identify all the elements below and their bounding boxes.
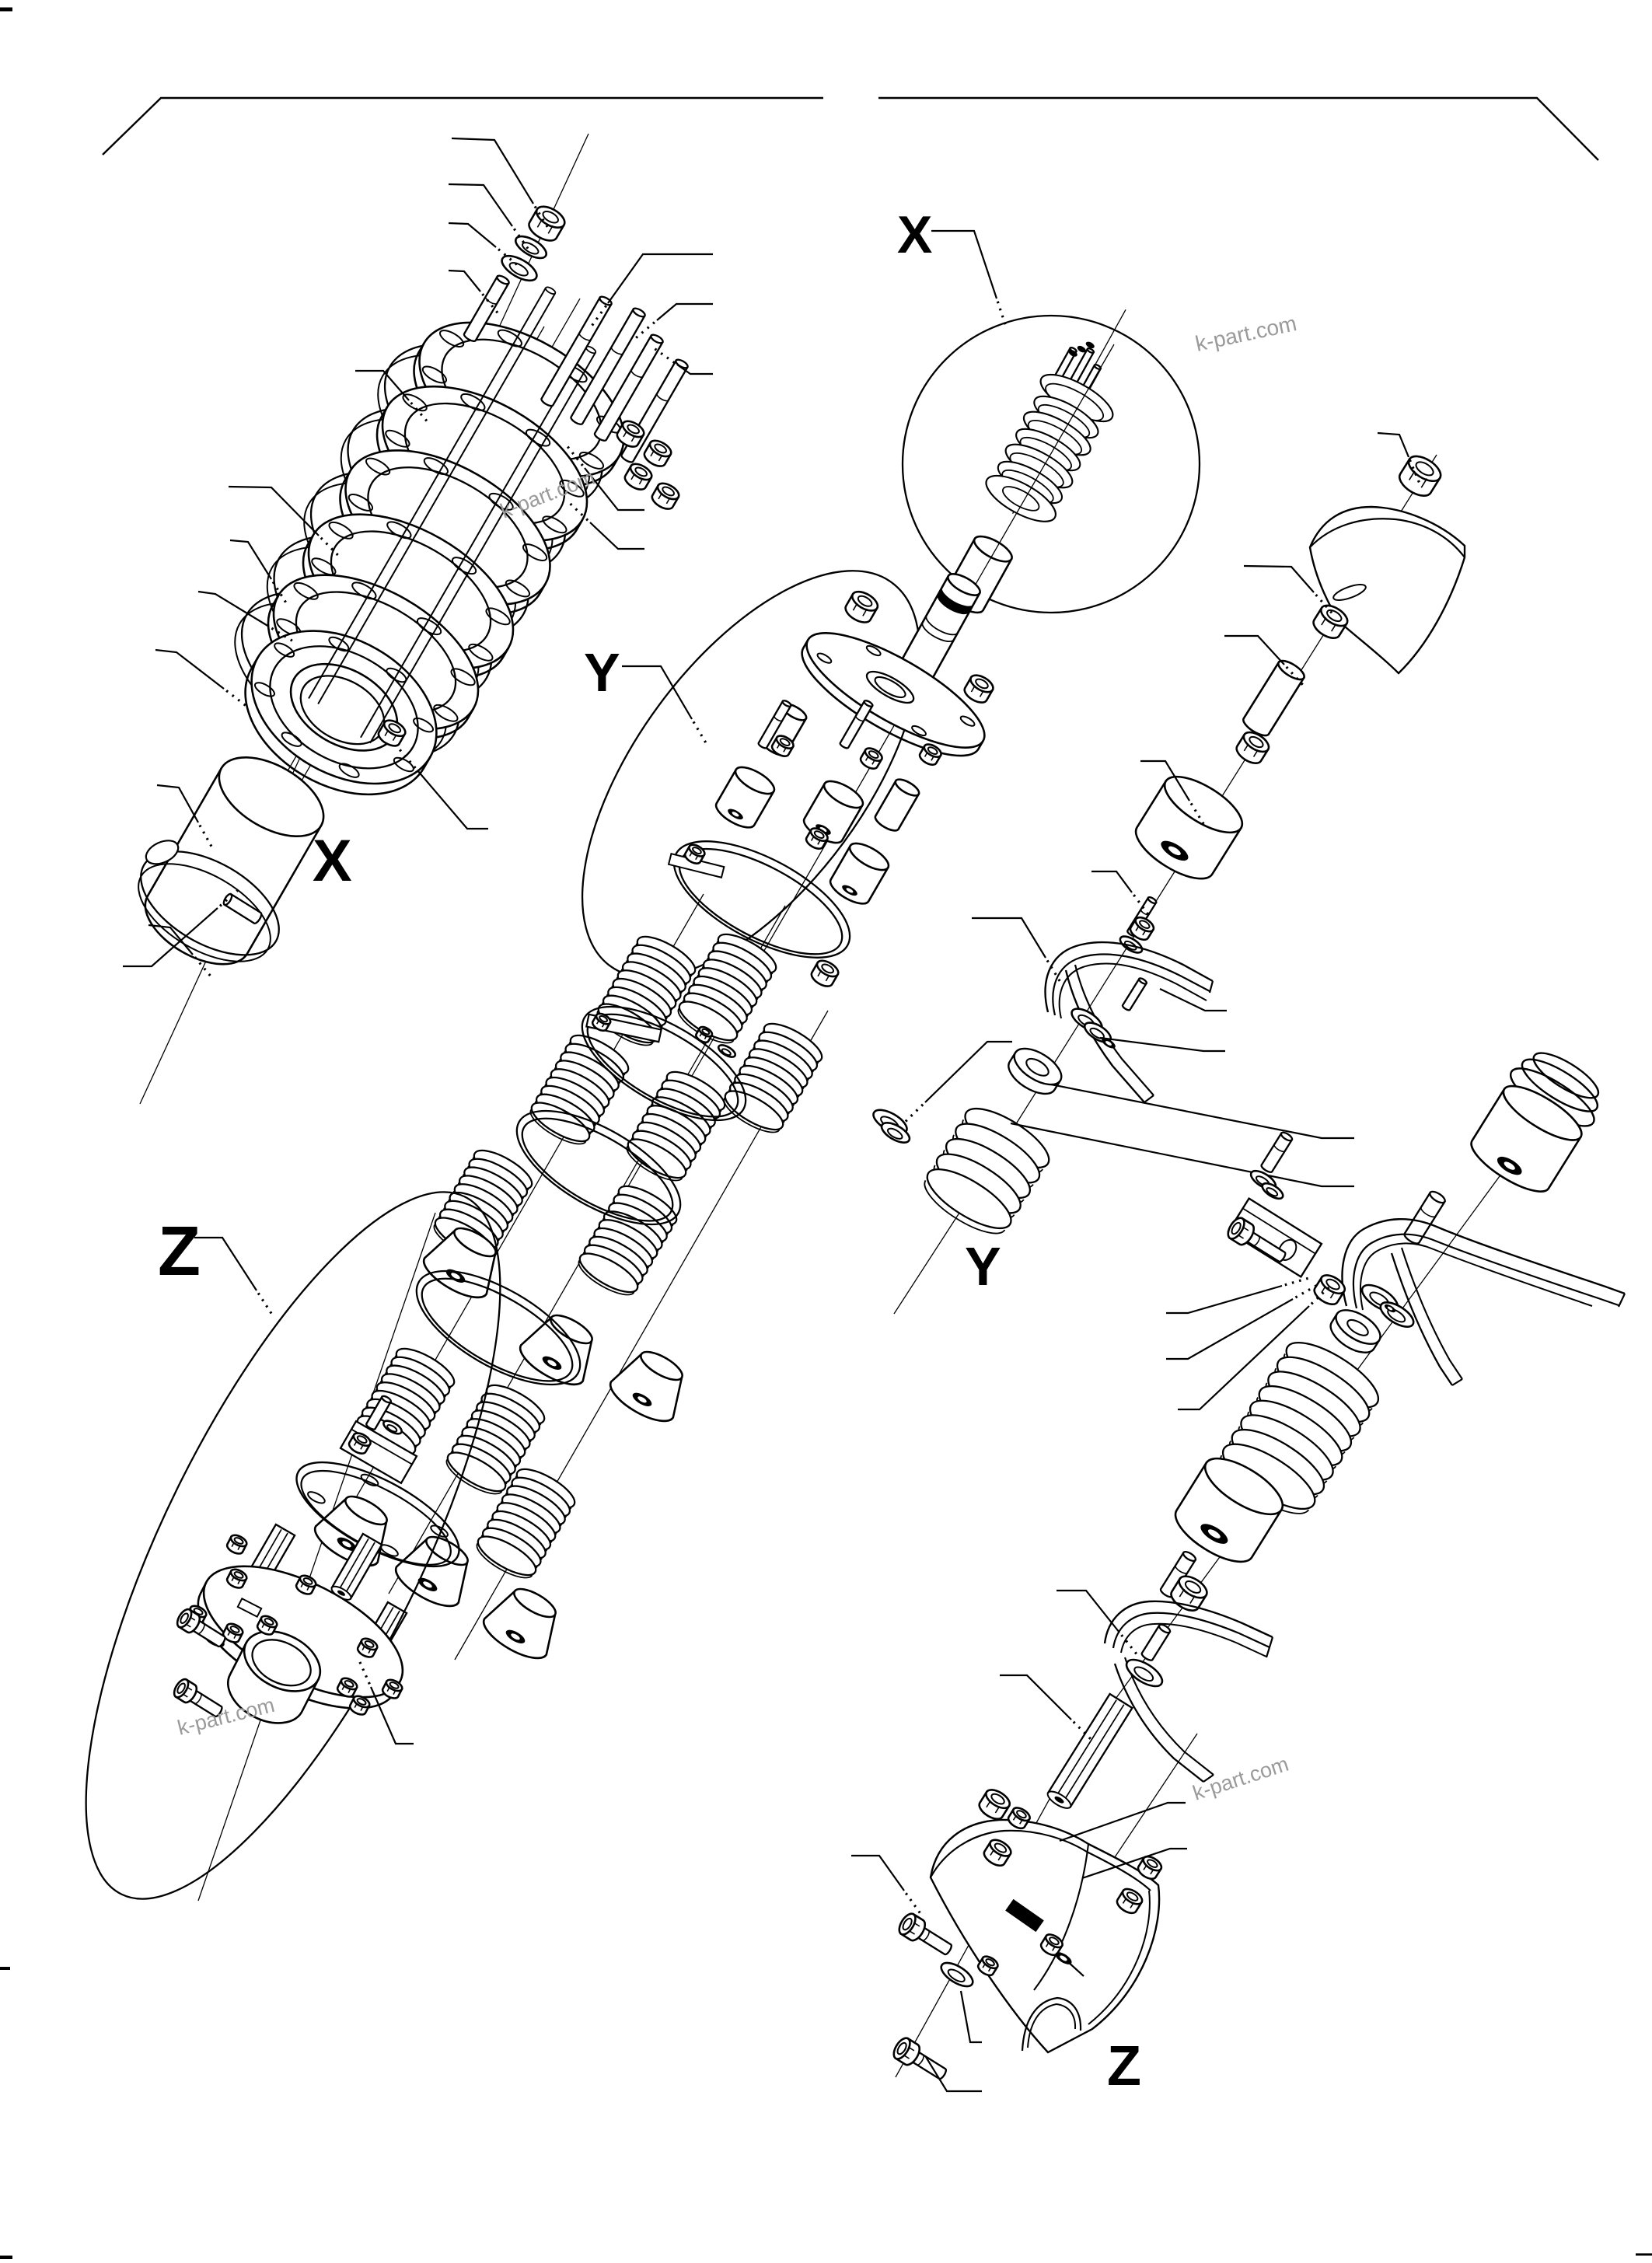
svg-text:Y: Y (965, 1236, 1001, 1297)
svg-text:Y: Y (584, 642, 620, 703)
svg-text:X: X (313, 828, 352, 894)
svg-text:X: X (897, 205, 932, 264)
svg-text:Z: Z (1107, 2035, 1141, 2097)
svg-text:Z: Z (158, 1213, 201, 1290)
